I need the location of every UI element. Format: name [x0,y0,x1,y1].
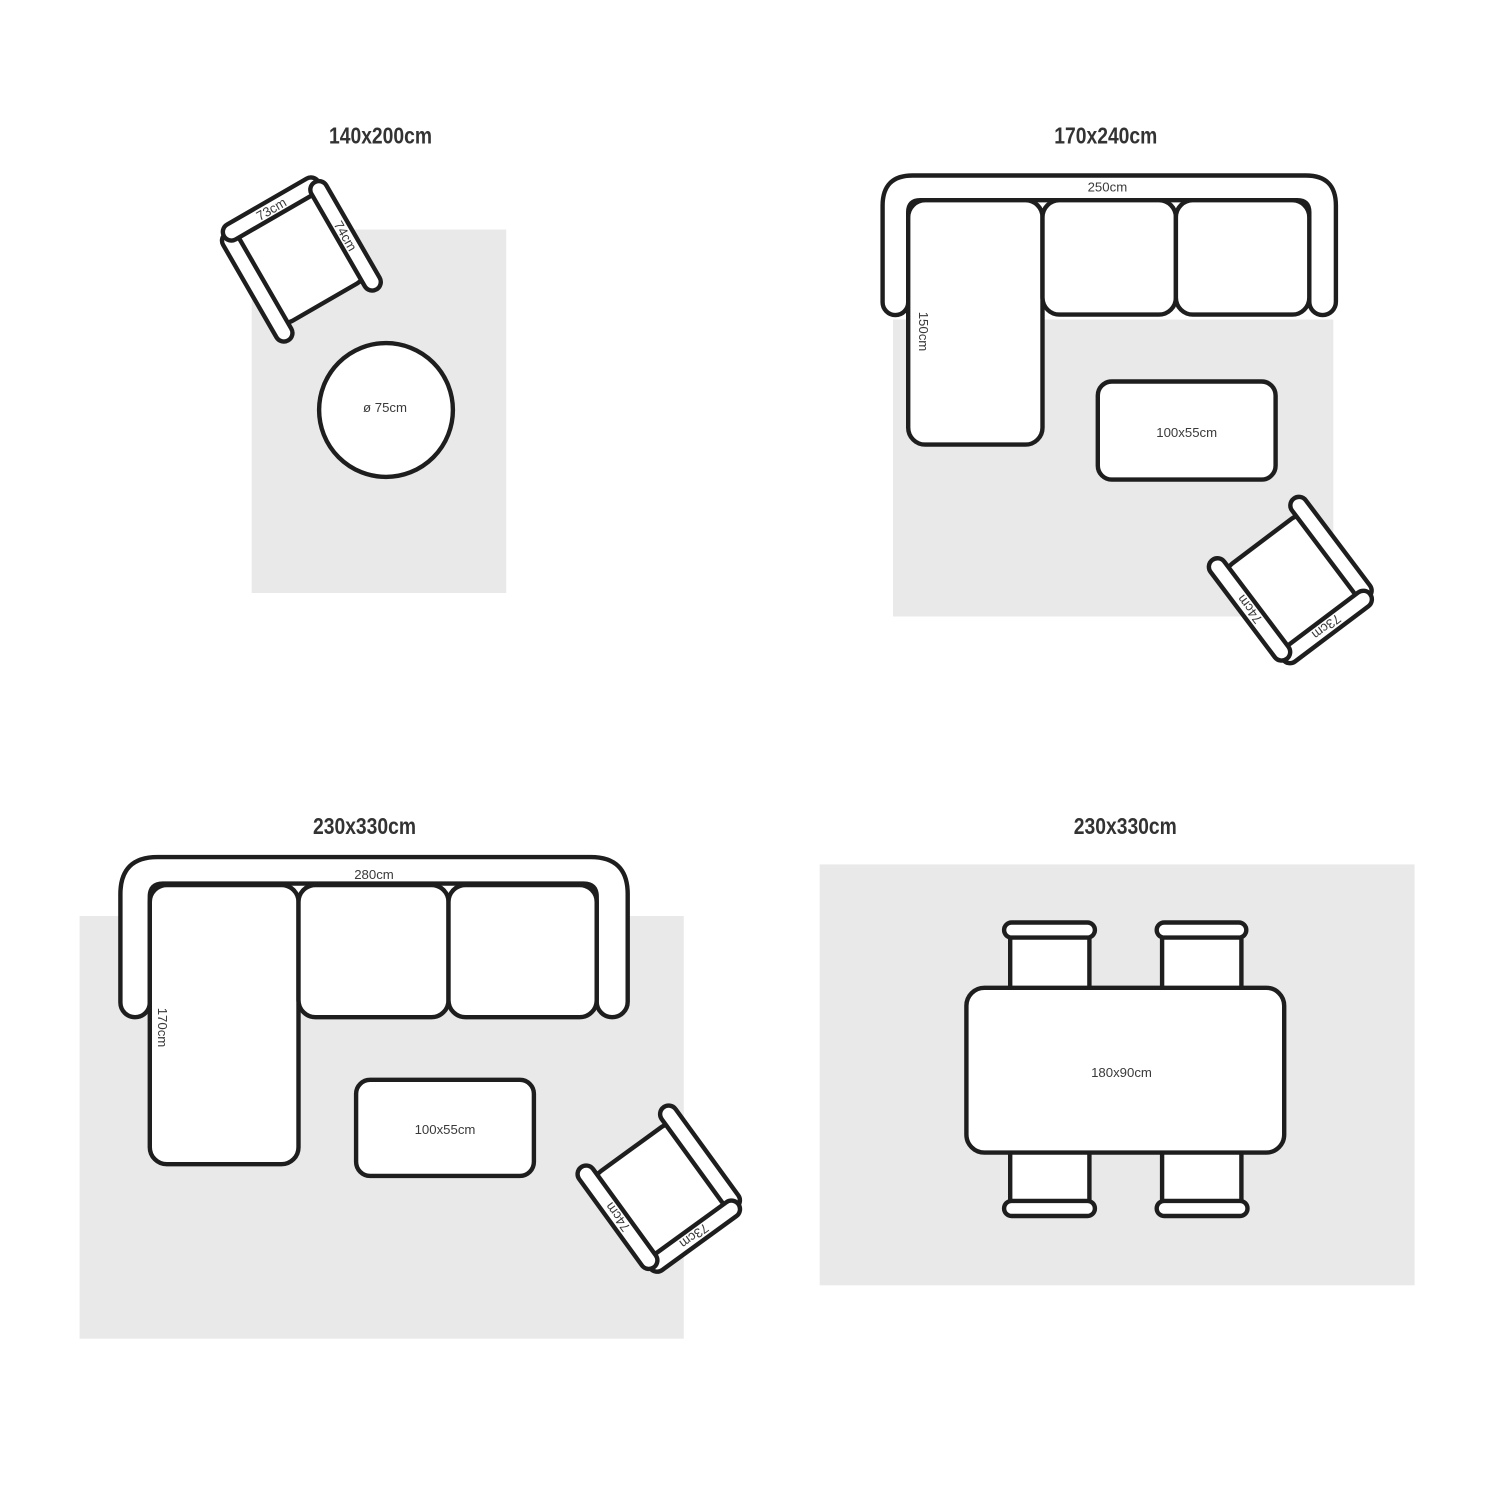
svg-text:230x330cm: 230x330cm [1074,813,1177,839]
svg-text:ø 75cm: ø 75cm [363,400,407,415]
svg-text:150cm: 150cm [916,312,931,352]
svg-text:100x55cm: 100x55cm [1156,425,1217,440]
svg-text:250cm: 250cm [1088,179,1128,194]
svg-text:170cm: 170cm [155,1008,170,1048]
svg-text:180x90cm: 180x90cm [1091,1065,1152,1080]
svg-text:140x200cm: 140x200cm [329,122,432,148]
svg-text:170x240cm: 170x240cm [1054,122,1157,148]
svg-text:100x55cm: 100x55cm [415,1122,476,1137]
svg-text:280cm: 280cm [354,867,394,882]
svg-text:230x330cm: 230x330cm [313,813,416,839]
